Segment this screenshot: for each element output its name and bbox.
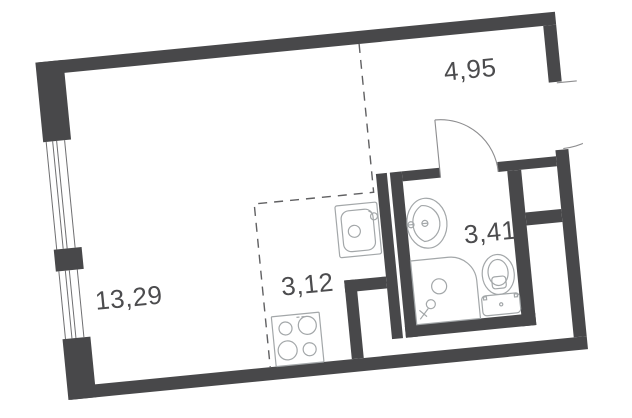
bathroom-door-swing-icon [435,114,498,177]
stove-icon [271,312,324,366]
window-icon-upper [46,140,75,249]
toilet-icon [477,253,521,316]
floor-plan: 13,29 3,12 4,95 3,41 [27,2,605,415]
wall-left-lower [63,337,97,400]
floor-plan-canvas: 13,29 3,12 4,95 3,41 [0,0,632,418]
entry-door-swing-icon [557,76,605,148]
wall-right-below-door [555,149,586,337]
wall-left-pier [54,247,84,272]
shower-icon [411,255,481,325]
wall-right-above-door [543,25,562,83]
wall-bottom [69,336,588,400]
zone-divider-dashed-line [240,44,390,367]
bathroom-top-wall-left [402,168,441,182]
kitchen-sink-icon [335,202,382,258]
bathroom-top-wall-right [497,156,557,172]
bathroom-south-wall [405,313,537,338]
